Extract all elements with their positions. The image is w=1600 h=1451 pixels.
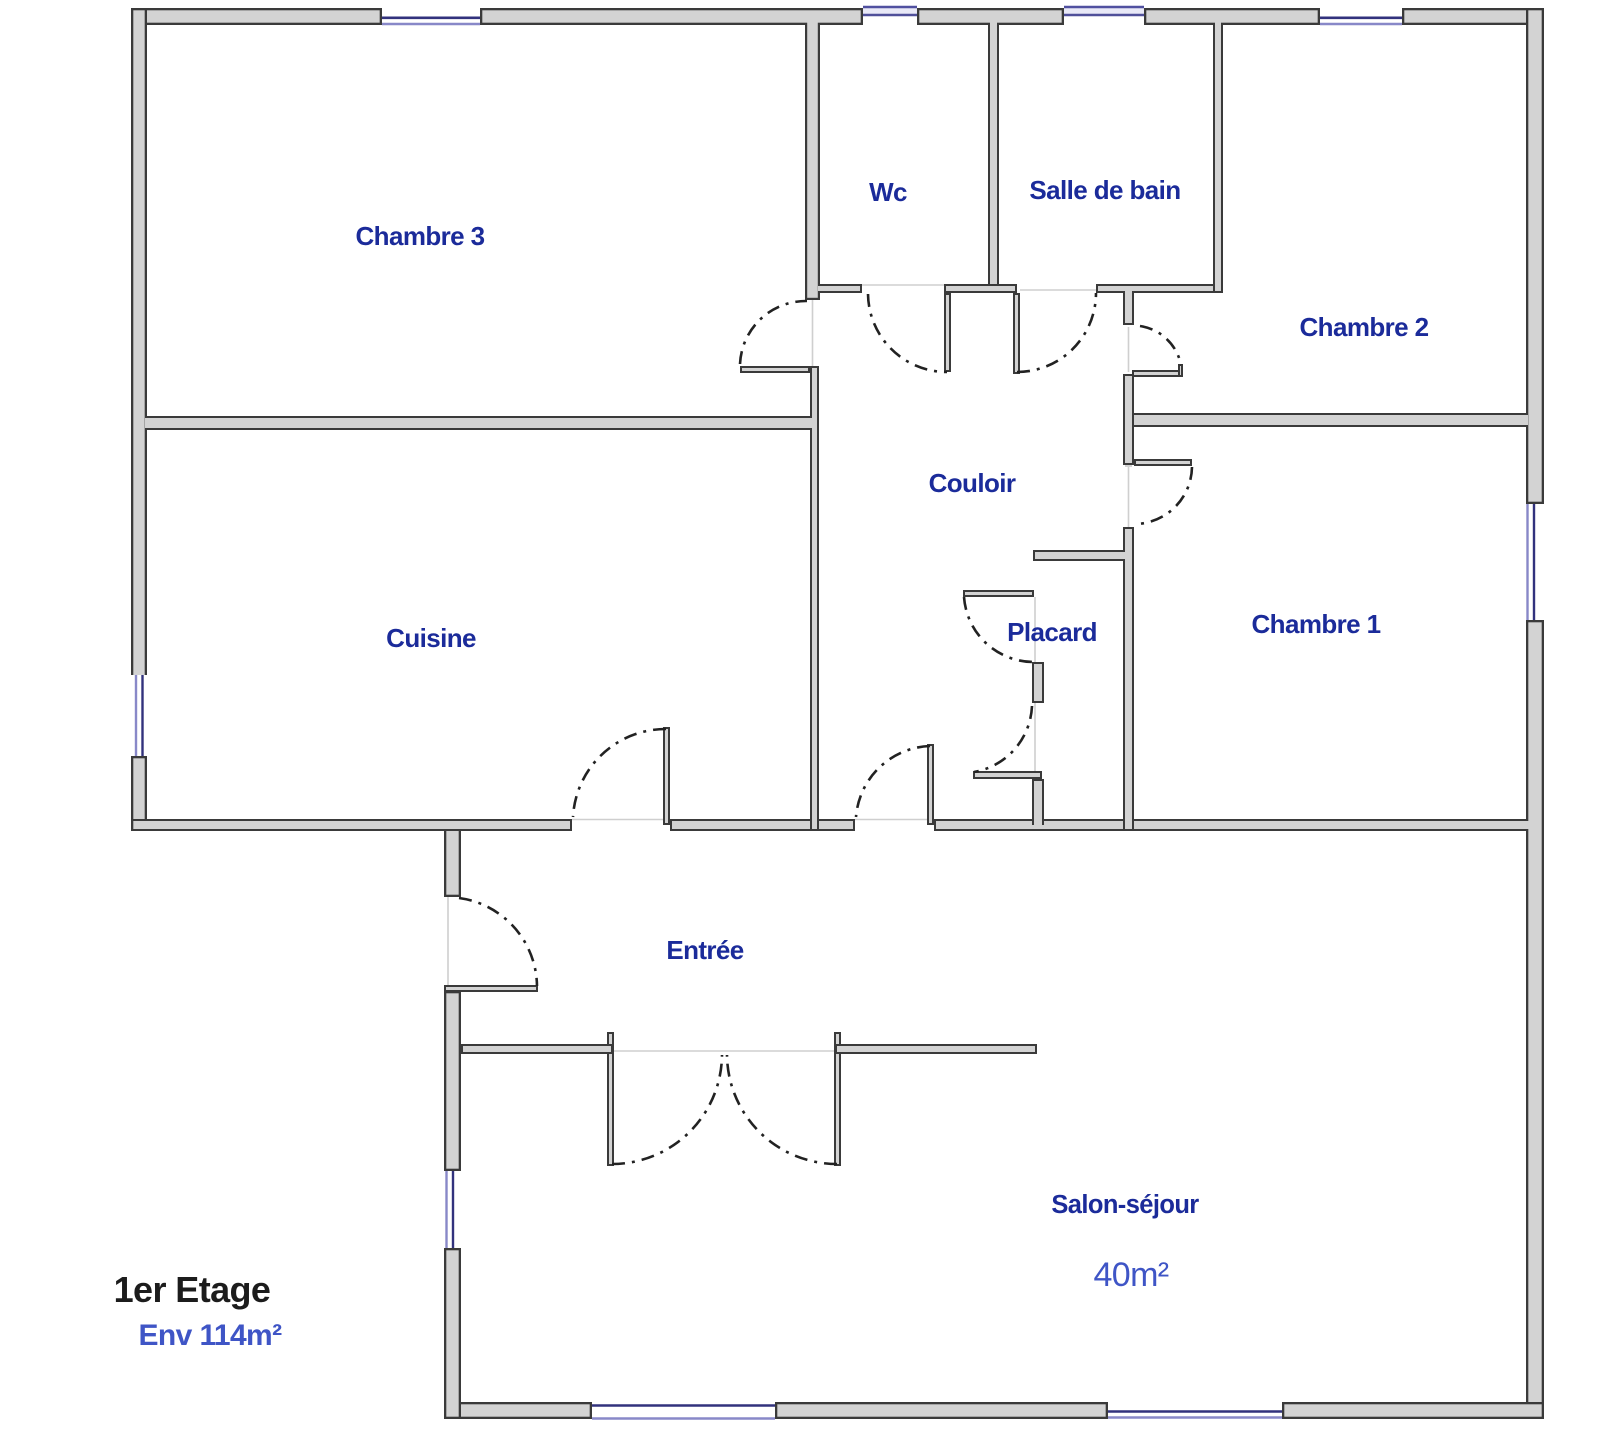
- svg-text:Chambre 3: Chambre 3: [356, 221, 485, 251]
- svg-text:Chambre 1: Chambre 1: [1252, 609, 1381, 639]
- svg-text:1er Etage: 1er Etage: [114, 1269, 271, 1310]
- svg-text:Salon-séjour: Salon-séjour: [1051, 1191, 1199, 1219]
- svg-text:Wc: Wc: [869, 177, 907, 207]
- svg-text:40m²: 40m²: [1093, 1256, 1168, 1294]
- svg-text:Chambre 2: Chambre 2: [1300, 312, 1429, 342]
- svg-text:Entrée: Entrée: [666, 935, 743, 965]
- svg-text:Cuisine: Cuisine: [386, 623, 476, 653]
- svg-text:Placard: Placard: [1007, 617, 1097, 647]
- svg-text:Salle de bain: Salle de bain: [1029, 175, 1180, 205]
- svg-text:Couloir: Couloir: [929, 468, 1016, 498]
- svg-text:Env 114m²: Env 114m²: [138, 1319, 282, 1352]
